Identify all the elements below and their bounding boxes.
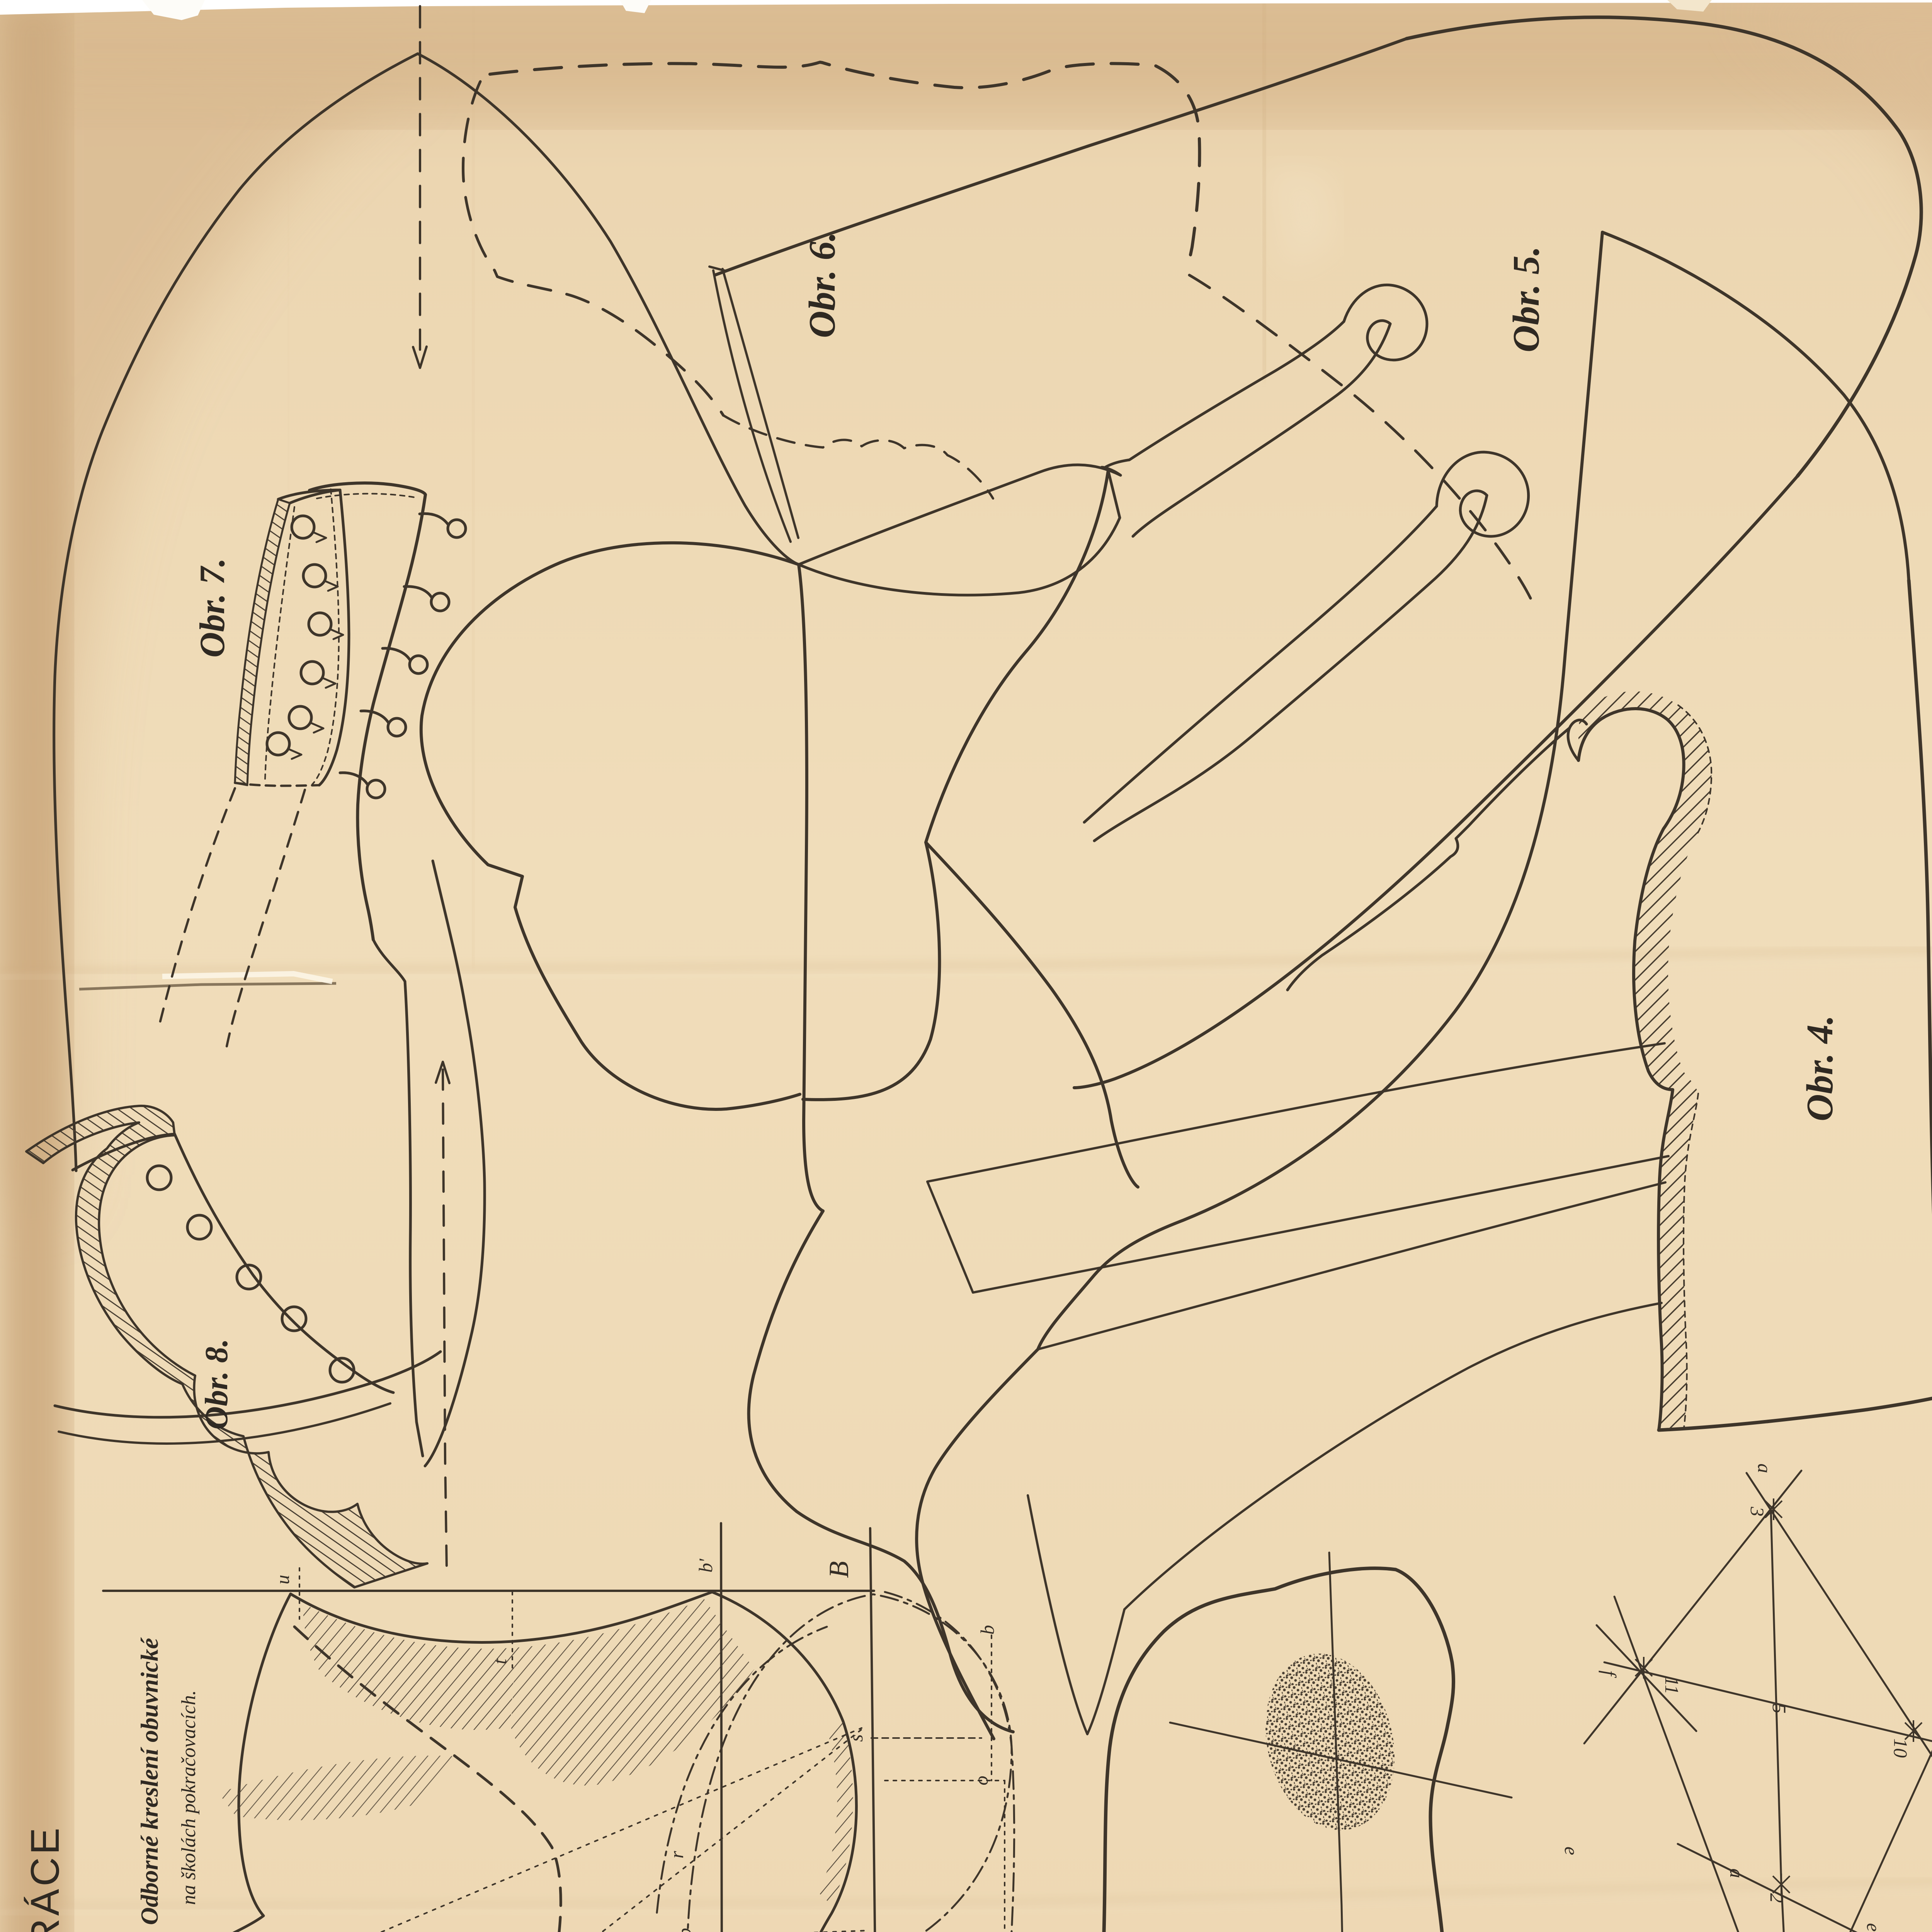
svg-text:Obr. 6.: Obr. 6. bbox=[801, 232, 843, 338]
svg-text:Odborné kreslení obuvnické: Odborné kreslení obuvnické bbox=[136, 1637, 163, 1925]
svg-text:10: 10 bbox=[1890, 1738, 1912, 1758]
svg-text:2: 2 bbox=[1766, 1893, 1788, 1903]
svg-text:a: a bbox=[1754, 1464, 1776, 1473]
svg-text:e: e bbox=[1561, 1847, 1582, 1855]
svg-text:na školách pokračovacích.: na školách pokračovacích. bbox=[178, 1690, 200, 1905]
svg-text:5: 5 bbox=[1769, 1704, 1790, 1714]
svg-text:11: 11 bbox=[1661, 1677, 1683, 1694]
svg-text:b': b' bbox=[695, 1558, 716, 1573]
svg-text:ČESKÁ PRÁCE: ČESKÁ PRÁCE bbox=[23, 1825, 68, 1932]
svg-text:e: e bbox=[1863, 1923, 1884, 1932]
svg-text:Obr. 7.: Obr. 7. bbox=[192, 558, 232, 658]
svg-text:t: t bbox=[489, 1658, 510, 1664]
svg-text:Obr. 4.: Obr. 4. bbox=[1799, 1015, 1841, 1121]
svg-text:Obr. 5.: Obr. 5. bbox=[1505, 246, 1547, 352]
svg-text:r: r bbox=[666, 1851, 687, 1859]
svg-text:3: 3 bbox=[1747, 1507, 1768, 1517]
svg-text:a: a bbox=[1726, 1869, 1748, 1878]
svg-text:s: s bbox=[845, 1734, 867, 1742]
svg-text:p: p bbox=[673, 1928, 695, 1932]
svg-text:u: u bbox=[272, 1575, 293, 1585]
svg-text:Obr. 8.: Obr. 8. bbox=[199, 1338, 235, 1430]
svg-text:b: b bbox=[976, 1625, 998, 1635]
svg-text:B: B bbox=[823, 1561, 854, 1578]
svg-text:o: o bbox=[970, 1776, 992, 1786]
